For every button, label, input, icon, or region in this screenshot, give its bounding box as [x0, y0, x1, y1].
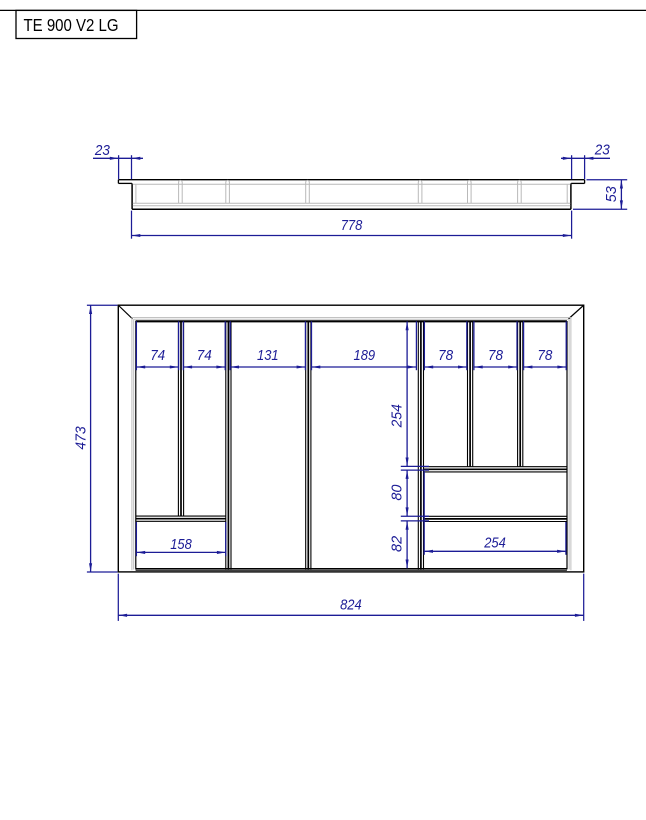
svg-text:158: 158: [170, 536, 192, 553]
svg-text:78: 78: [438, 347, 454, 364]
svg-text:131: 131: [257, 347, 279, 364]
svg-text:82: 82: [389, 535, 406, 552]
svg-text:473: 473: [73, 426, 90, 450]
svg-text:23: 23: [94, 142, 110, 159]
svg-text:78: 78: [537, 347, 553, 364]
svg-text:824: 824: [340, 597, 362, 614]
svg-text:TE 900 V2 LG: TE 900 V2 LG: [24, 15, 119, 35]
svg-text:23: 23: [594, 141, 610, 158]
svg-text:778: 778: [341, 217, 363, 234]
svg-text:189: 189: [354, 347, 376, 364]
svg-text:53: 53: [603, 186, 620, 203]
svg-text:254: 254: [483, 534, 505, 551]
svg-text:80: 80: [388, 484, 405, 501]
svg-text:74: 74: [197, 347, 212, 364]
svg-text:74: 74: [150, 347, 165, 364]
svg-text:78: 78: [488, 347, 504, 364]
svg-text:254: 254: [389, 404, 406, 428]
